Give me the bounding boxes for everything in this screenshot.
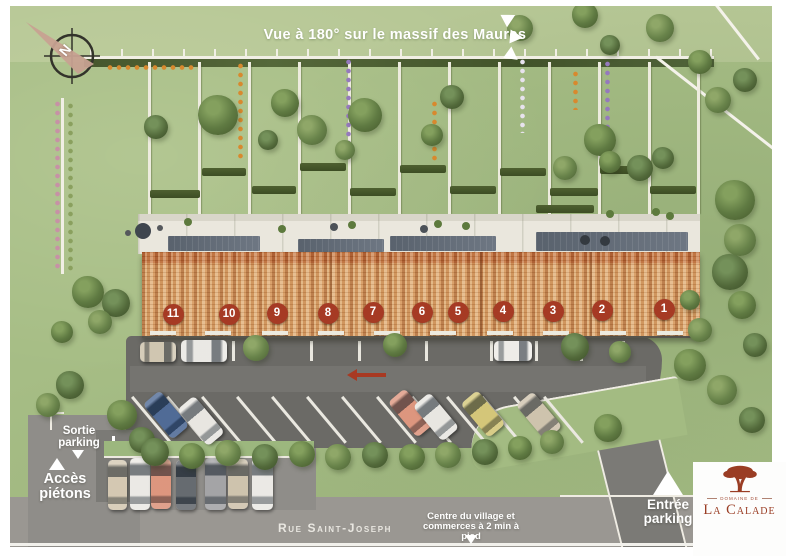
terrace-furniture: [330, 223, 338, 231]
terrace-furniture: [420, 225, 428, 233]
tree: [271, 89, 299, 117]
view-arrow-icon: [509, 29, 523, 44]
house-badge-3: 3: [543, 301, 564, 322]
tree: [399, 444, 425, 470]
tree: [383, 333, 407, 357]
hedge: [150, 190, 200, 198]
hedge: [350, 188, 396, 196]
terrace-furniture: [606, 210, 614, 218]
tree: [335, 140, 355, 160]
tree: [144, 115, 168, 139]
flower-bed: [573, 70, 578, 110]
label-acces-line2: piétons: [26, 487, 104, 502]
house-badge-11: 11: [163, 304, 184, 325]
hedge: [202, 168, 246, 176]
tree: [348, 98, 382, 132]
tree: [141, 438, 169, 466]
tree: [627, 155, 653, 181]
traffic-direction-arrow: [356, 373, 386, 377]
house-badge-10: 10: [219, 304, 240, 325]
entree-arrow-icon: [653, 471, 683, 495]
sortie-arrow-icon: [72, 450, 84, 459]
car: [140, 342, 176, 362]
terrace-furniture: [157, 225, 163, 231]
terrace-furniture: [652, 208, 660, 216]
tree: [705, 87, 731, 113]
page-margin: [0, 547, 786, 556]
parking-driveway: [130, 366, 646, 392]
tree: [715, 180, 755, 220]
roof-gutter: [657, 331, 683, 335]
label-acces-line1: Accès: [26, 472, 104, 487]
tree: [728, 291, 756, 319]
acces-arrow-icon: [49, 458, 65, 470]
tree: [652, 147, 674, 169]
page-margin: [0, 0, 786, 6]
fence-post: [369, 49, 371, 58]
fence-post: [152, 49, 154, 58]
fence-post: [462, 49, 464, 58]
flower-bed: [238, 62, 243, 162]
tree: [724, 224, 756, 256]
tree: [646, 14, 674, 42]
house-badge-1: 1: [654, 299, 675, 320]
tree: [297, 115, 327, 145]
tree: [440, 85, 464, 109]
tree: [243, 335, 269, 361]
fence-post: [555, 49, 557, 58]
roof-joint: [480, 252, 482, 336]
roof-gutter: [487, 331, 513, 335]
label-acces-pietons: Accès piétons: [26, 472, 104, 502]
terrace-furniture: [580, 235, 590, 245]
fence-post: [245, 49, 247, 58]
village-arrow-icon: [465, 535, 477, 544]
logo-overline-text: Domaine de: [720, 496, 759, 501]
fence-post: [493, 49, 495, 58]
olive-tree-icon: [717, 462, 763, 494]
fence-post: [679, 49, 681, 58]
fence-post: [431, 49, 433, 58]
boundary-path: [712, 0, 760, 60]
logo-name: La Calade: [703, 502, 775, 519]
terrace-deck: [536, 232, 688, 251]
tree: [198, 95, 238, 135]
hedge: [252, 186, 296, 194]
garden-wall: [398, 62, 401, 214]
tree: [739, 407, 765, 433]
terrace-furniture: [434, 220, 442, 228]
tree: [540, 430, 564, 454]
label-sortie-line2: parking: [48, 437, 110, 449]
fence-post: [338, 49, 340, 58]
roof-gutter: [262, 331, 288, 335]
terrace-furniture: [600, 236, 610, 246]
tree: [599, 151, 621, 173]
house-badge-2: 2: [592, 300, 613, 321]
label-entree-parking: Entrée parking: [636, 498, 700, 526]
roof-gutter: [430, 331, 456, 335]
tree: [325, 444, 351, 470]
tree: [72, 276, 104, 308]
roof-gutter: [205, 331, 231, 335]
tree: [51, 321, 73, 343]
roof-gutter: [543, 331, 569, 335]
hedge: [450, 186, 496, 194]
tree: [362, 442, 388, 468]
tree: [553, 156, 577, 180]
logo-overline: Domaine de: [707, 496, 772, 501]
site-plan-image: 1110987654321Vue à 180° sur le massif de…: [0, 0, 786, 556]
flower-bed: [106, 65, 198, 70]
house-badge-7: 7: [363, 302, 384, 323]
fence-post: [586, 49, 588, 58]
car: [130, 458, 150, 510]
house-badge-5: 5: [448, 302, 469, 323]
house-badge-6: 6: [412, 302, 433, 323]
compass-rose: N: [20, 12, 116, 96]
logo-panel: Domaine de La Calade: [693, 462, 786, 556]
parking-separator: [535, 341, 538, 361]
fence-post: [400, 49, 402, 58]
sidewalk-line: [0, 543, 786, 546]
tree: [508, 436, 532, 460]
car: [228, 459, 248, 509]
tree: [688, 50, 712, 74]
fence-post: [121, 49, 123, 58]
hedge: [550, 188, 598, 196]
flower-bed: [68, 102, 73, 272]
car: [494, 341, 532, 361]
tree: [215, 440, 241, 466]
tree: [56, 371, 84, 399]
garden-side-path: [61, 98, 64, 274]
tree: [743, 333, 767, 357]
tree: [561, 333, 589, 361]
roof-gutter: [150, 331, 176, 335]
terrace-furniture: [125, 230, 131, 236]
terrace-furniture: [348, 221, 356, 229]
tree: [435, 442, 461, 468]
parking-separator: [490, 341, 493, 361]
terrace-furniture: [462, 222, 470, 230]
parking-separator: [425, 341, 428, 361]
flower-bed: [520, 58, 525, 133]
hedge: [400, 165, 446, 173]
page-margin: [0, 0, 10, 556]
garden-wall: [498, 62, 501, 214]
hedge: [650, 186, 696, 194]
tree: [712, 254, 748, 290]
tree: [107, 400, 137, 430]
garden-wall: [248, 62, 251, 214]
house-badge-8: 8: [318, 303, 339, 324]
tree: [88, 310, 112, 334]
roof-gutter: [318, 331, 344, 335]
parking-separator: [358, 341, 361, 361]
building-roof: [142, 252, 700, 338]
parking-separator: [310, 341, 313, 361]
terrace-furniture: [135, 223, 151, 239]
tree: [688, 318, 712, 342]
roof-gutter: [600, 331, 626, 335]
tree: [289, 441, 315, 467]
tree: [421, 124, 443, 146]
fence-post: [183, 49, 185, 58]
garden-wall: [697, 62, 700, 214]
tree: [36, 393, 60, 417]
terrace-deck: [390, 236, 496, 251]
tree: [258, 130, 278, 150]
car: [205, 458, 226, 510]
fence-post: [276, 49, 278, 58]
hedge: [500, 168, 546, 176]
view-banner-text: Vue à 180° sur le massif des Maures: [240, 27, 550, 43]
terrace-deck: [168, 236, 260, 251]
tree: [707, 375, 737, 405]
label-sortie-parking: Sortie parking: [48, 425, 110, 449]
hedge: [300, 163, 346, 171]
fence-post: [524, 49, 526, 58]
plan-canvas: 1110987654321Vue à 180° sur le massif de…: [0, 0, 786, 556]
label-entree-line2: parking: [636, 512, 700, 526]
house-badge-4: 4: [493, 301, 514, 322]
tree: [600, 35, 620, 55]
parking-separator: [232, 341, 235, 361]
hedge: [536, 205, 594, 213]
car: [181, 340, 227, 362]
terrace-furniture: [184, 218, 192, 226]
car: [151, 459, 171, 509]
house-badge-9: 9: [267, 303, 288, 324]
car: [108, 460, 127, 510]
tree: [472, 439, 498, 465]
terrace-furniture: [278, 225, 286, 233]
terrace-furniture: [666, 212, 674, 220]
street-name-label: Rue Saint-Joseph: [260, 521, 410, 535]
tree: [680, 290, 700, 310]
tree: [674, 349, 706, 381]
terrace-deck: [298, 239, 384, 252]
tree: [594, 414, 622, 442]
fence-post: [307, 49, 309, 58]
fence-post: [648, 49, 650, 58]
fence-post: [214, 49, 216, 58]
label-entree-line1: Entrée: [636, 498, 700, 512]
tree: [179, 443, 205, 469]
tree: [733, 68, 757, 92]
roof-joint: [590, 252, 592, 336]
tree: [252, 444, 278, 470]
flower-bed: [55, 100, 60, 272]
label-sortie-line1: Sortie: [48, 425, 110, 437]
tree: [609, 341, 631, 363]
